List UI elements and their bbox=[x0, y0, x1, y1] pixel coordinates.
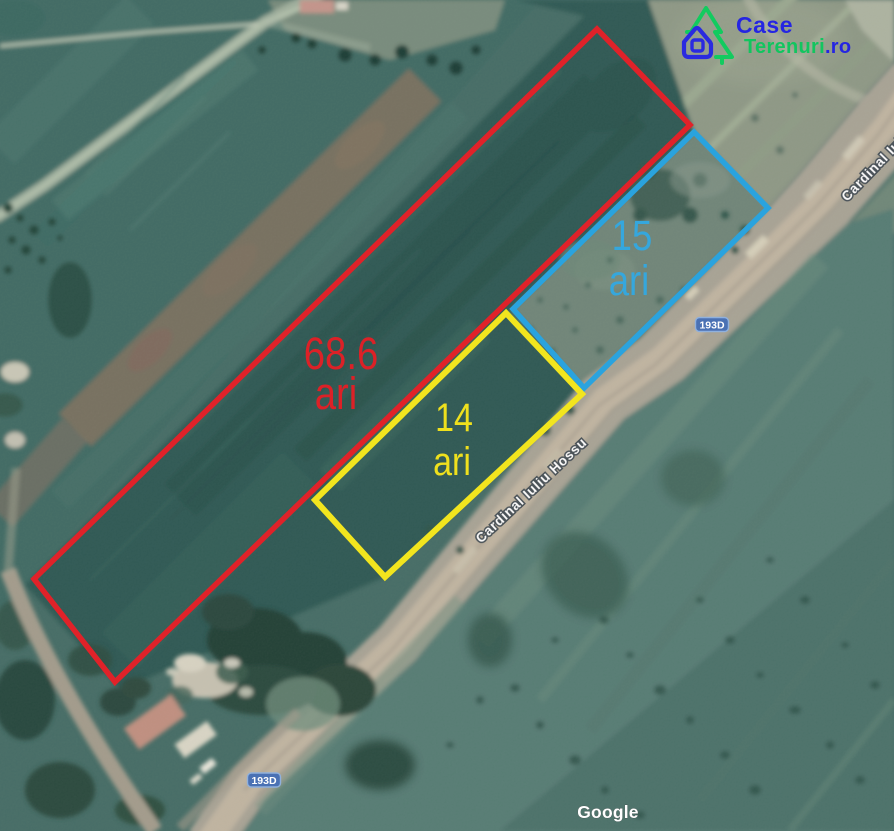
svg-text:193D: 193D bbox=[251, 775, 277, 787]
svg-text:Google: Google bbox=[577, 802, 639, 822]
svg-text:Terenuri.ro: Terenuri.ro bbox=[744, 36, 851, 58]
svg-text:193D: 193D bbox=[699, 320, 725, 332]
svg-text:ari: ari bbox=[433, 438, 471, 483]
svg-text:ari: ari bbox=[315, 368, 358, 419]
svg-text:15: 15 bbox=[612, 212, 653, 259]
svg-text:Case: Case bbox=[736, 12, 793, 38]
svg-text:14: 14 bbox=[435, 394, 473, 439]
svg-text:ari: ari bbox=[609, 257, 650, 304]
